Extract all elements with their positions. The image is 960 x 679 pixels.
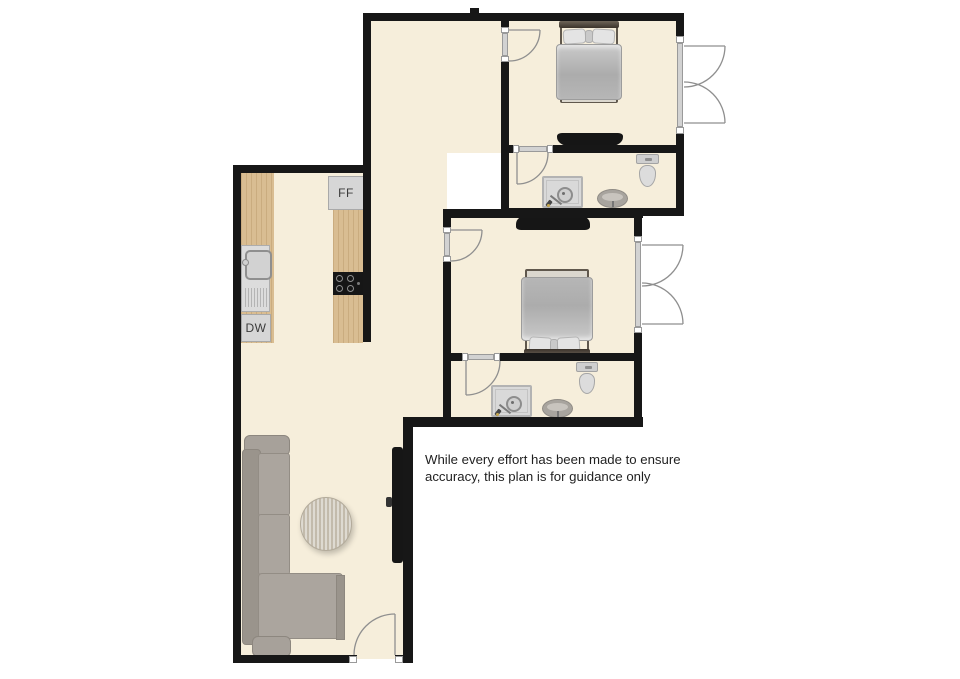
door-jamb [634,327,642,333]
wall-top [363,13,684,21]
wall-kitchen-top [233,165,371,173]
wall-bed2-bath2-divider [443,353,462,361]
bed1-headboard [559,21,619,28]
wall-bathroom1-north [501,145,513,153]
basin-icon [597,189,628,208]
door-jamb [395,656,403,663]
wall-bedroom1-west [501,13,509,27]
shower-dot [511,401,514,404]
wall-left-outer [233,165,241,663]
sofa-cushion [258,453,290,516]
burner-icon [336,275,343,282]
wall-bed2-bath2-divider [500,353,642,361]
wall-bathroom1-south [501,208,684,216]
faucet-icon [242,259,249,266]
toilet-cistern [576,362,598,372]
wall-living-right [403,417,413,663]
shower-icon [542,176,583,208]
door-leaf-closed [519,146,547,152]
wall-bedroom2-west [443,262,451,427]
sofa-chaise-edge [336,575,345,640]
dishwasher-label: DW [246,321,267,335]
hob-icon [333,272,363,295]
burner-icon [347,285,354,292]
door-leaf-closed [468,354,494,360]
door-jamb [676,127,684,134]
french-doors-swing-icon [642,245,683,324]
fridge-freezer: FF [328,176,364,210]
sofa-cushion [258,514,290,575]
french-doors-icon [635,242,641,327]
tv-icon [392,447,403,563]
basin-inner [547,403,568,411]
wall-right-outer [676,127,684,216]
wall-bottom-outer [233,655,357,663]
fridge-freezer-label: FF [338,186,354,200]
wall-bathroom2-bottom [403,417,643,427]
wall-hall-west [363,13,371,173]
door-jamb [349,656,357,663]
door-jamb [443,256,451,262]
disclaimer-line1: While every effort has been made to ensu… [425,452,681,469]
door-jamb [501,56,509,62]
pillow-icon [563,28,587,45]
disclaimer-line2: accuracy, this plan is for guidance only [425,469,681,486]
door-jamb [547,145,553,153]
shower-icon [491,385,532,417]
flush-button-icon [585,366,592,369]
toilet-cistern [636,154,659,164]
pillow-icon [592,28,616,45]
disclaimer-text: While every effort has been made to ensu… [425,452,681,485]
kitchen-sink-icon [241,245,270,312]
shower-drain [496,413,499,416]
double-bed-icon [521,277,593,341]
shower-dot [562,192,565,195]
sink-bowl [245,250,272,280]
wall-bathroom1-north [553,145,684,153]
flush-button-icon [645,158,652,161]
door-jamb [494,353,500,361]
basin-inner [602,193,623,201]
dishwasher: DW [241,314,271,342]
floorplan-canvas: DW FF [0,0,960,679]
french-doors-swing-icon [684,46,725,123]
double-bed-icon [556,44,622,100]
corner-sofa-icon [258,573,343,639]
tap-icon [612,201,614,207]
burner-icon [347,275,354,282]
wall-bedroom2-east [634,327,642,427]
basin-icon [542,399,573,418]
wall-bedroom1-west [501,62,509,216]
door-leaf-closed [444,233,450,256]
door-jamb [676,36,684,43]
round-table-icon [300,497,352,551]
shower-drain [547,204,550,207]
cushion-icon [585,30,593,43]
door-leaf-closed [502,33,508,56]
sofa-armrest [252,636,291,657]
burner-icon [336,285,343,292]
hob-knob-icon [357,282,360,285]
french-doors-icon [677,43,683,127]
tv-mount [386,497,392,507]
wall-kitchen-island [363,173,371,342]
drainer-icon [245,288,268,307]
wall-tick [470,8,479,14]
hall-floor [367,17,505,153]
